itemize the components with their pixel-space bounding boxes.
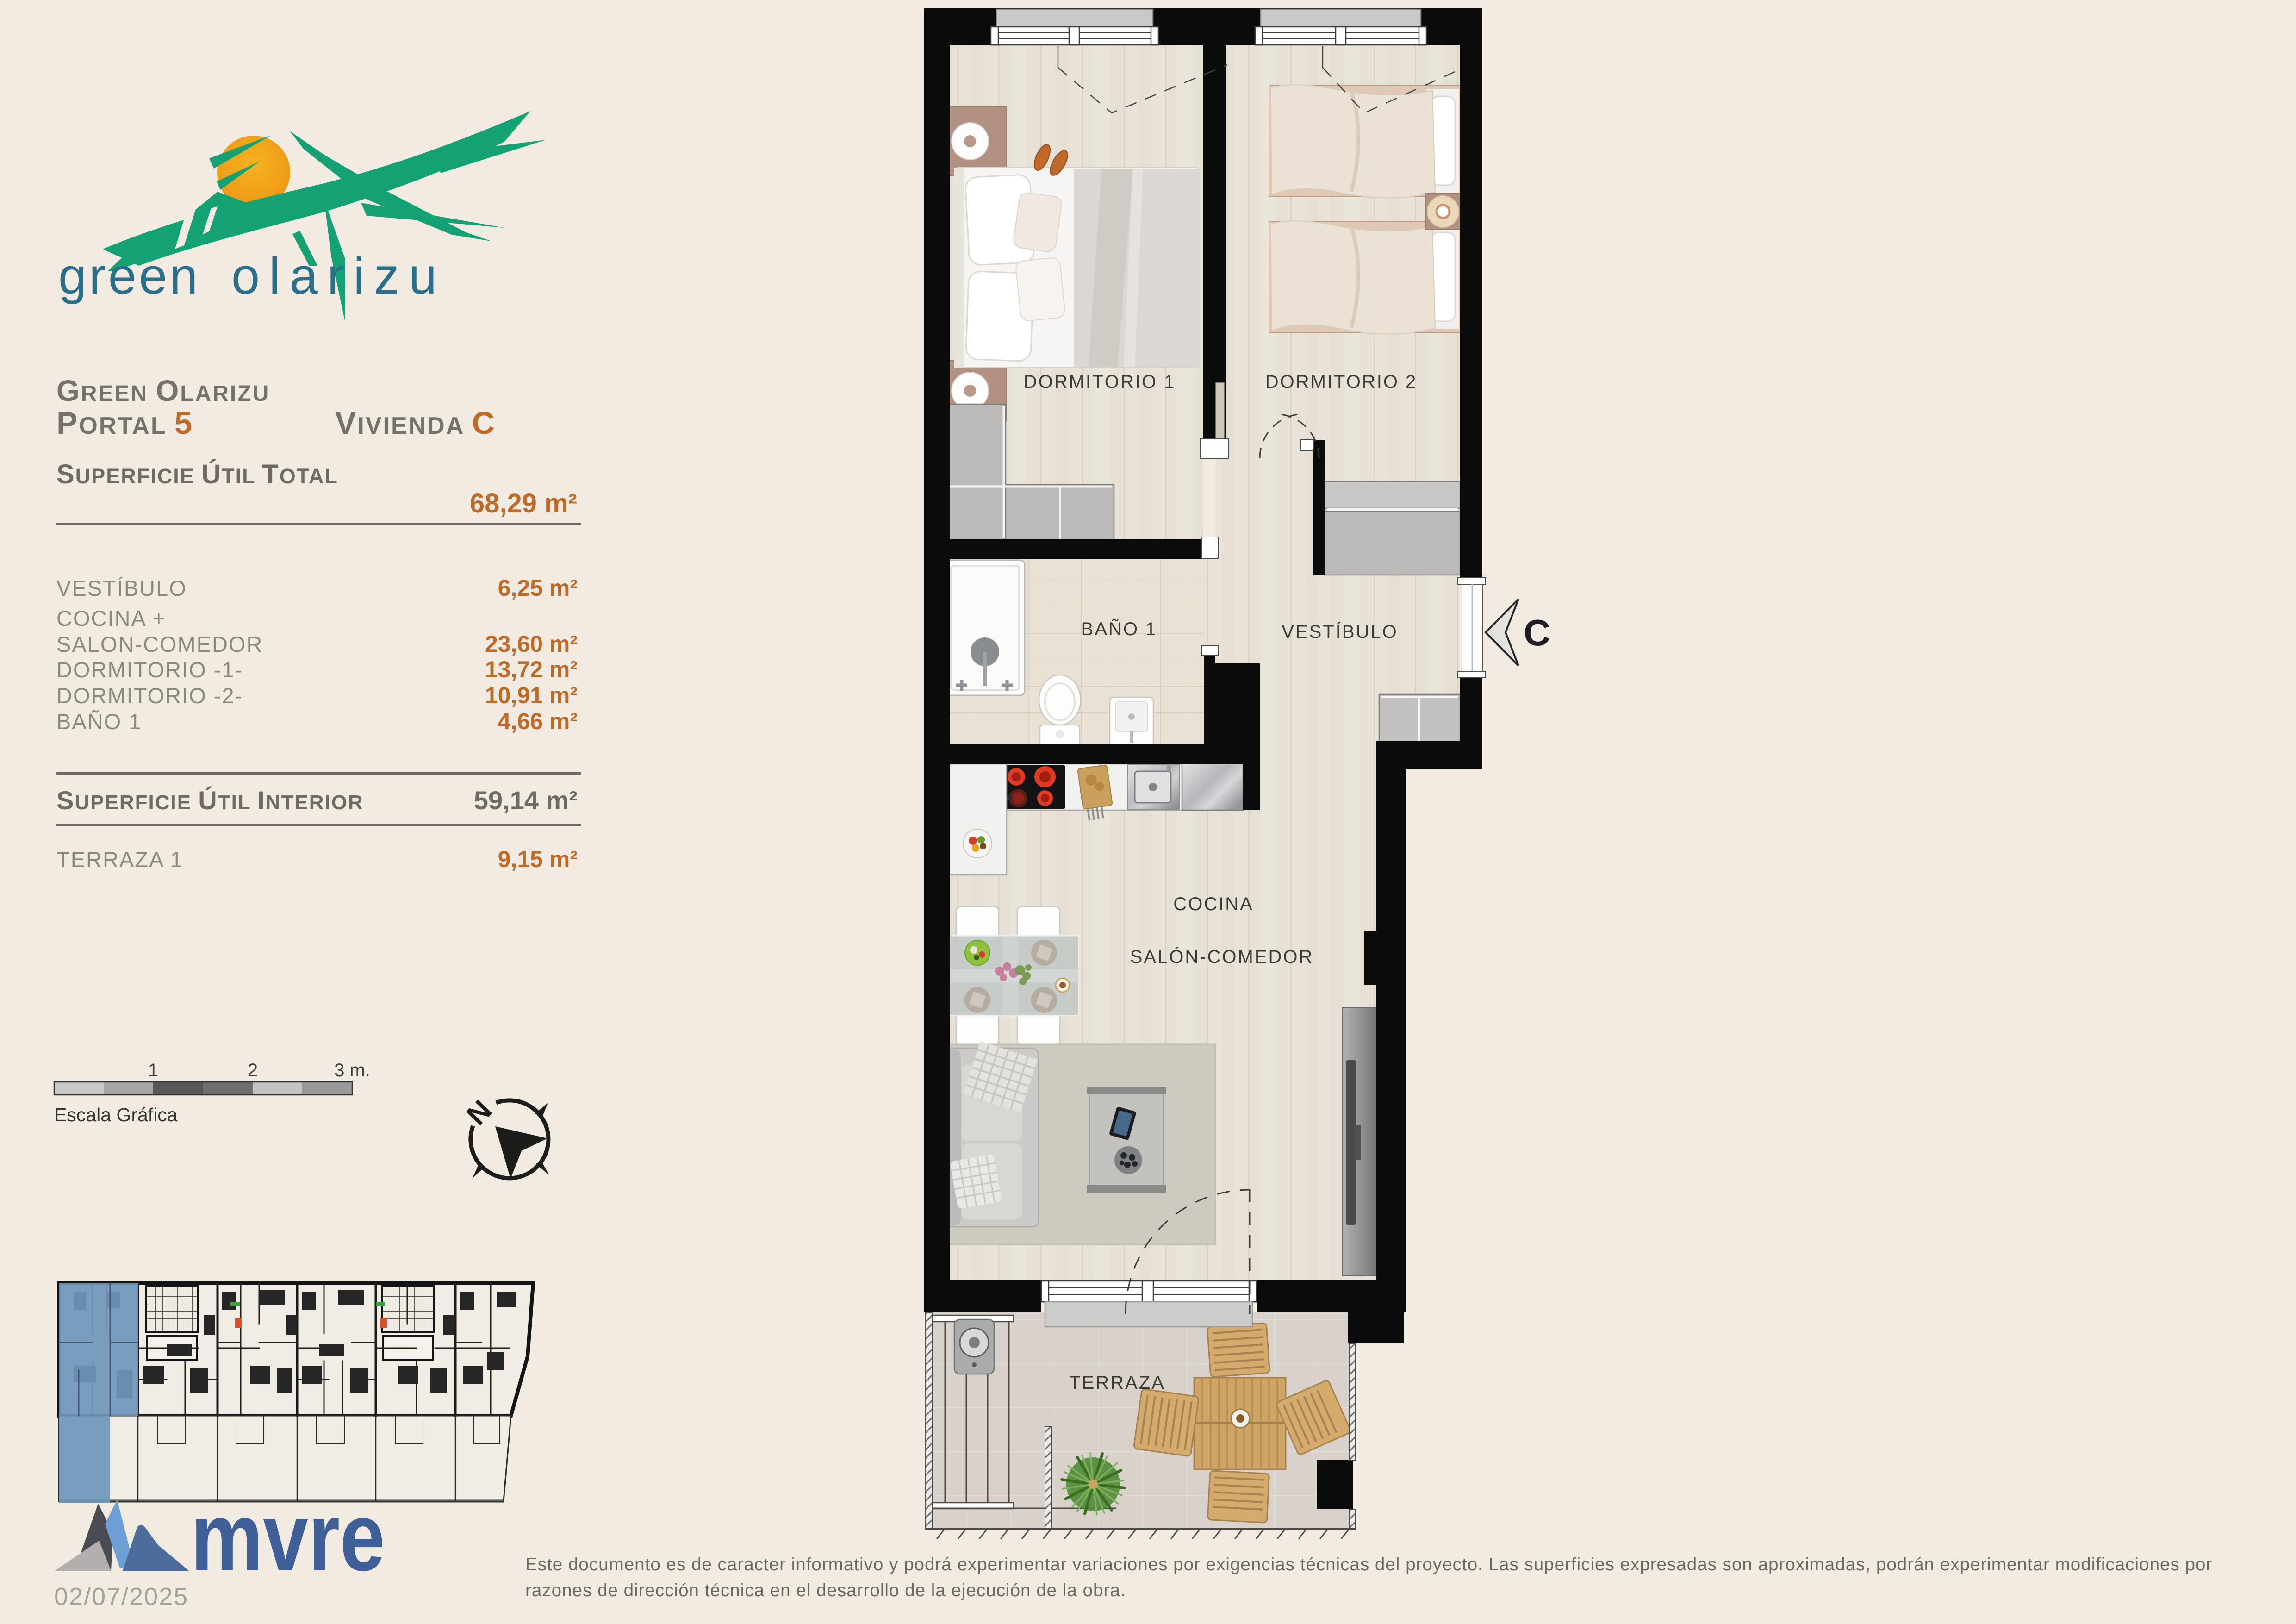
svg-text:13,72 m²: 13,72 m² <box>485 656 578 682</box>
svg-text:1: 1 <box>148 1060 158 1081</box>
svg-text:VESTÍBULO: VESTÍBULO <box>1282 621 1398 642</box>
svg-text:razones de dirección técnica e: razones de dirección técnica en el desar… <box>525 1580 1126 1600</box>
svg-text:N: N <box>460 1094 498 1131</box>
svg-text:68,29 m²: 68,29 m² <box>470 488 577 518</box>
svg-text:SALON-COMEDOR: SALON-COMEDOR <box>56 632 263 656</box>
svg-text:DORMITORIO 1: DORMITORIO 1 <box>1024 372 1176 392</box>
svg-text:PORTAL 5: PORTAL 5 <box>56 406 193 441</box>
svg-text:VIVIENDA C: VIVIENDA C <box>335 406 496 441</box>
svg-text:3 m.: 3 m. <box>334 1060 370 1081</box>
svg-text:9,15 m²: 9,15 m² <box>498 846 578 872</box>
svg-text:Escala Gráfica: Escala Gráfica <box>54 1104 178 1125</box>
svg-text:COCINA +: COCINA + <box>56 606 166 631</box>
svg-text:TERRAZA: TERRAZA <box>1069 1373 1165 1393</box>
svg-text:BAÑO 1: BAÑO 1 <box>56 709 142 734</box>
svg-text:DORMITORIO -1-: DORMITORIO -1- <box>56 657 243 682</box>
svg-text:SUPERFICIE ÚTIL INTERIOR: SUPERFICIE ÚTIL INTERIOR <box>56 786 364 815</box>
svg-text:10,91 m²: 10,91 m² <box>485 682 578 708</box>
svg-text:GREEN OLARIZU: GREEN OLARIZU <box>56 374 270 407</box>
svg-text:Este documento es de caracter: Este documento es de caracter informativ… <box>525 1555 2212 1574</box>
svg-text:6,25 m²: 6,25 m² <box>498 575 578 601</box>
svg-text:23,60 m²: 23,60 m² <box>485 631 578 657</box>
svg-text:COCINA: COCINA <box>1173 894 1254 914</box>
svg-text:BAÑO 1: BAÑO 1 <box>1081 618 1157 639</box>
svg-text:SUPERFICIE ÚTIL TOTAL: SUPERFICIE ÚTIL TOTAL <box>56 459 338 489</box>
svg-text:olarizu: olarizu <box>231 248 446 305</box>
svg-text:02/07/2025: 02/07/2025 <box>54 1583 188 1611</box>
svg-text:2: 2 <box>248 1060 258 1081</box>
svg-text:green: green <box>58 248 200 305</box>
svg-text:4,66 m²: 4,66 m² <box>498 708 578 734</box>
svg-text:VESTÍBULO: VESTÍBULO <box>56 576 187 600</box>
svg-text:mvre: mvre <box>191 1482 385 1591</box>
svg-text:C: C <box>1524 612 1550 653</box>
svg-text:DORMITORIO -2-: DORMITORIO -2- <box>56 683 243 708</box>
svg-text:DORMITORIO 2: DORMITORIO 2 <box>1265 372 1418 392</box>
svg-text:TERRAZA 1: TERRAZA 1 <box>56 847 183 872</box>
svg-text:SALÓN-COMEDOR: SALÓN-COMEDOR <box>1130 946 1314 967</box>
svg-text:59,14 m²: 59,14 m² <box>474 786 578 815</box>
